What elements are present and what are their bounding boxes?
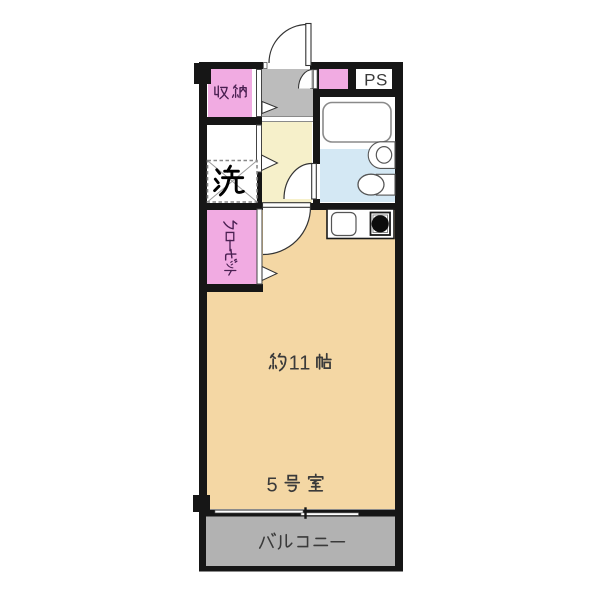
svg-text:PS: PS xyxy=(364,71,388,90)
svg-text:5: 5 xyxy=(266,475,277,497)
svg-text:11: 11 xyxy=(289,353,312,375)
